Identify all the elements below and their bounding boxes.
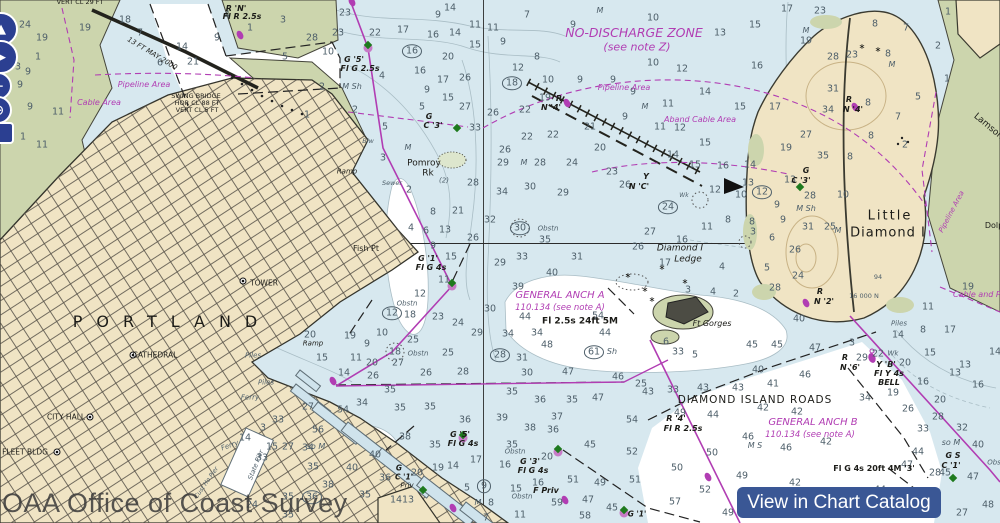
layers-button[interactable] — [0, 122, 14, 144]
chart-viewer: 2419192117139991111118714621491328251012… — [0, 0, 1000, 523]
pan-right-icon: ▶ — [0, 50, 6, 65]
zoom-in-icon: + — [0, 77, 4, 95]
globe-icon: ⊕ — [0, 101, 4, 119]
pan-up-icon: ▲ — [0, 22, 6, 37]
chart-basemap — [0, 0, 1000, 523]
watermark: NOAA Office of Coast Survey — [0, 488, 348, 519]
view-in-chart-catalog-button[interactable]: View in Chart Catalog — [737, 487, 941, 518]
